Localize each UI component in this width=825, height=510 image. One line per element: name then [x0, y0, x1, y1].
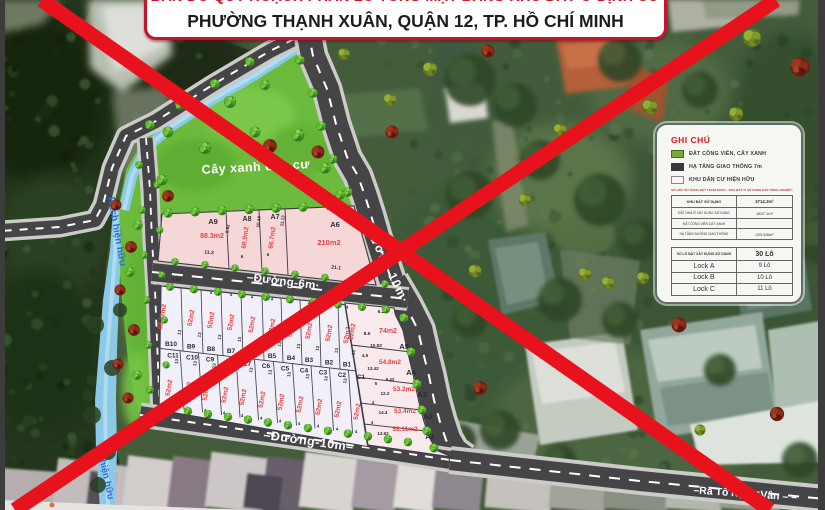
svg-text:21.1: 21.1: [331, 265, 342, 272]
svg-text:B9: B9: [187, 344, 196, 351]
svg-text:C5: C5: [281, 365, 290, 372]
svg-text:A3: A3: [417, 390, 427, 399]
svg-text:C1: C1: [357, 374, 366, 381]
svg-text:4.5: 4.5: [362, 353, 369, 358]
svg-text:A6: A6: [330, 220, 340, 229]
svg-text:210m2: 210m2: [317, 238, 340, 247]
svg-text:B10: B10: [165, 341, 177, 348]
svg-text:13.42: 13.42: [367, 366, 379, 371]
svg-text:54.8m2: 54.8m2: [379, 359, 401, 366]
svg-text:58.11m2: 58.11m2: [392, 426, 418, 433]
svg-text:88.3m2: 88.3m2: [200, 233, 224, 240]
svg-text:A8: A8: [243, 216, 252, 223]
svg-text:53.2m2: 53.2m2: [393, 386, 415, 393]
svg-text:11.3: 11.3: [204, 250, 214, 257]
svg-text:B3: B3: [305, 357, 314, 364]
svg-text:8.5: 8.5: [364, 331, 371, 337]
svg-text:B5: B5: [268, 353, 277, 360]
svg-text:9.42: 9.42: [386, 377, 395, 382]
svg-text:4.94: 4.94: [172, 277, 182, 283]
svg-text:B2: B2: [325, 359, 334, 366]
svg-text:53.4m2: 53.4m2: [394, 408, 416, 415]
svg-text:B8: B8: [207, 346, 216, 353]
svg-text:B1: B1: [343, 361, 352, 368]
svg-text:C6: C6: [262, 363, 271, 370]
svg-text:A4: A4: [406, 368, 416, 377]
svg-text:A9: A9: [208, 217, 218, 226]
svg-text:C9: C9: [206, 357, 215, 364]
svg-text:C10: C10: [186, 355, 198, 362]
svg-text:C11: C11: [167, 352, 179, 359]
svg-text:10.92: 10.92: [370, 343, 382, 349]
svg-text:B4: B4: [287, 355, 296, 362]
svg-text:A7: A7: [271, 214, 280, 221]
svg-text:C4: C4: [300, 368, 309, 375]
svg-text:14.4: 14.4: [379, 410, 388, 415]
svg-text:12.2: 12.2: [381, 391, 390, 396]
svg-text:74m2: 74m2: [379, 328, 397, 335]
